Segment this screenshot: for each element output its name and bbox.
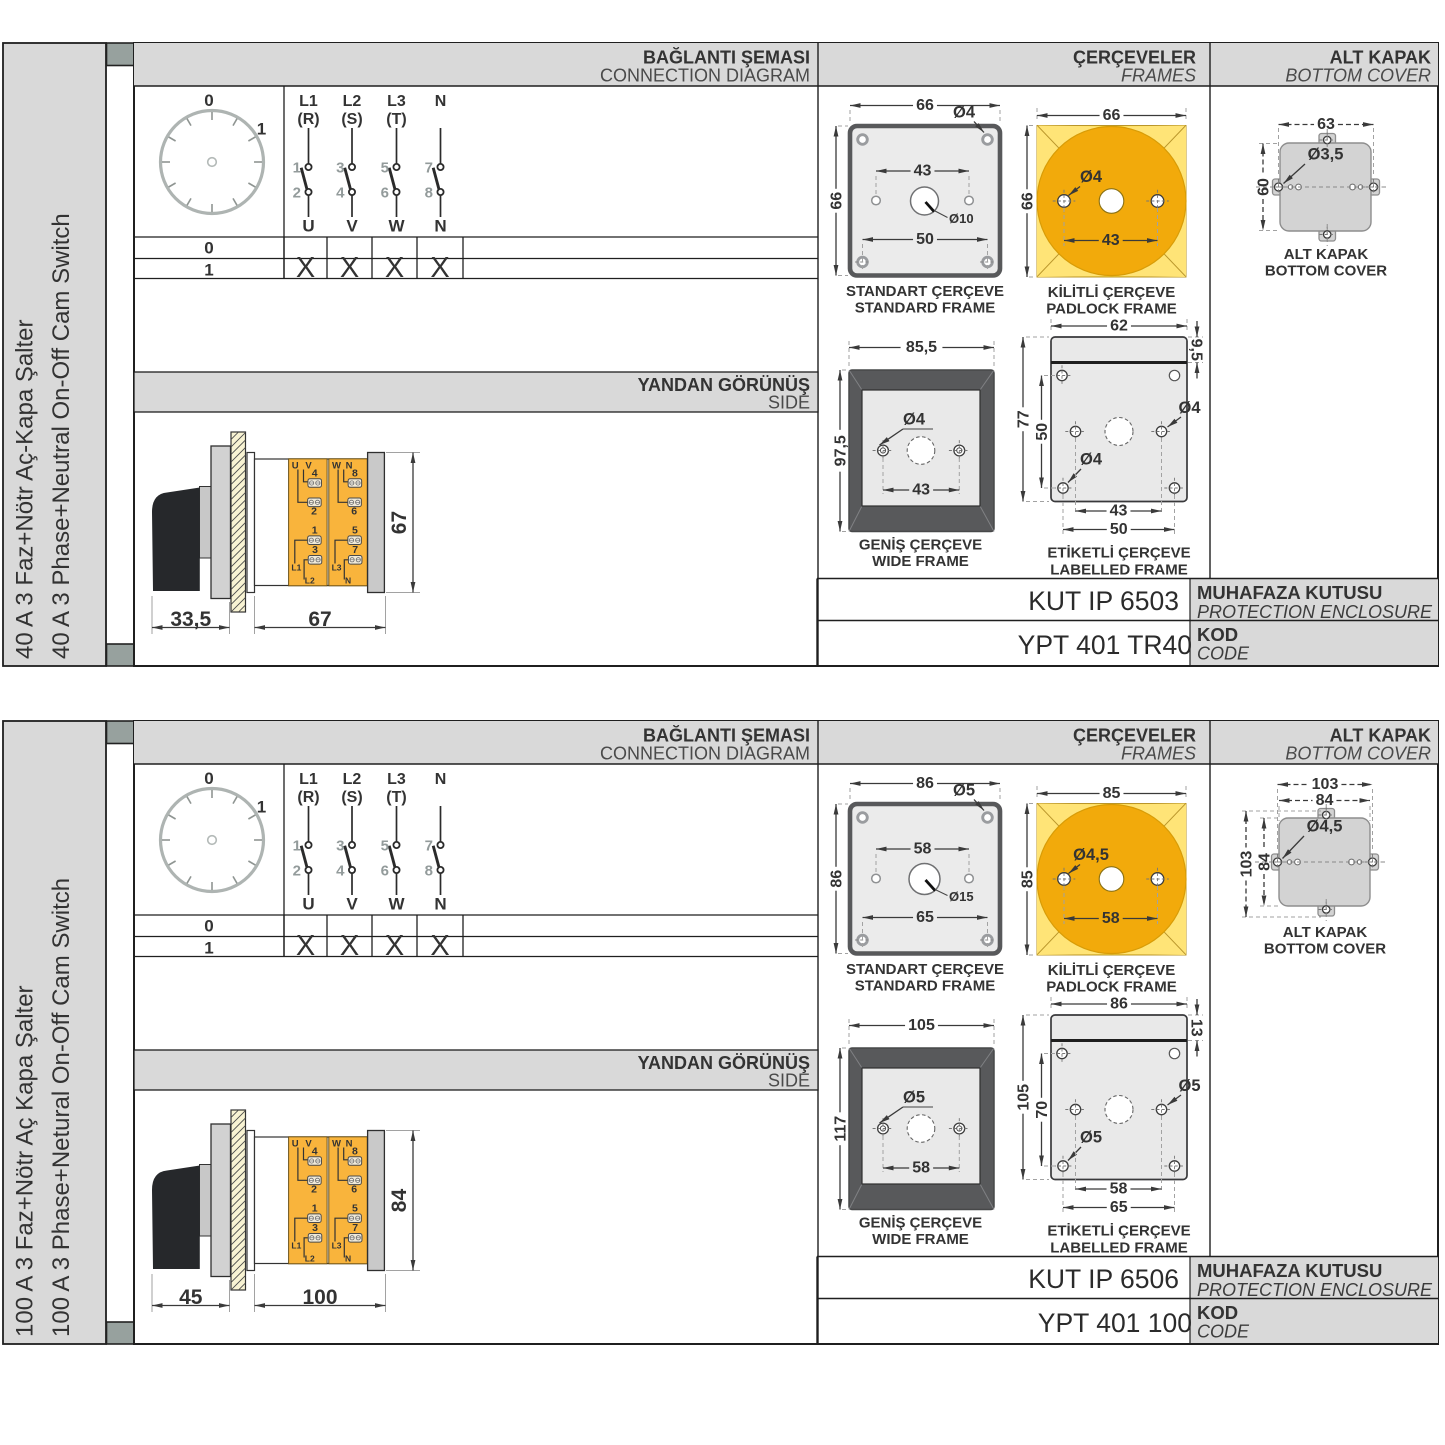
- svg-text:3: 3: [312, 544, 318, 556]
- svg-text:77: 77: [1015, 410, 1032, 428]
- svg-text:84: 84: [1316, 792, 1334, 809]
- svg-text:(S): (S): [341, 111, 362, 128]
- svg-text:4: 4: [312, 468, 318, 480]
- svg-text:Ø4: Ø4: [903, 411, 926, 429]
- svg-text:45: 45: [179, 1286, 203, 1309]
- svg-text:2: 2: [293, 185, 301, 202]
- svg-text:Ø5: Ø5: [1178, 1077, 1200, 1095]
- svg-text:KOD: KOD: [1197, 1302, 1238, 1323]
- svg-text:Ø3,5: Ø3,5: [1308, 146, 1344, 164]
- svg-text:L2: L2: [343, 93, 362, 110]
- svg-text:Ø10: Ø10: [949, 211, 974, 226]
- svg-text:(R): (R): [297, 111, 319, 128]
- svg-text:Ø5: Ø5: [953, 782, 975, 800]
- svg-text:STANDARD FRAME: STANDARD FRAME: [855, 978, 996, 995]
- svg-text:0: 0: [204, 239, 213, 258]
- svg-text:ÇERÇEVELER: ÇERÇEVELER: [1073, 48, 1196, 68]
- svg-text:ALT KAPAK: ALT KAPAK: [1284, 246, 1369, 263]
- svg-text:3: 3: [336, 160, 344, 177]
- svg-text:65: 65: [916, 909, 934, 926]
- svg-text:1: 1: [312, 525, 318, 537]
- svg-text:STANDART ÇERÇEVE: STANDART ÇERÇEVE: [846, 961, 1004, 978]
- svg-text:6: 6: [381, 185, 389, 202]
- svg-text:8: 8: [425, 185, 433, 202]
- svg-text:V: V: [346, 217, 358, 236]
- svg-text:43: 43: [1102, 232, 1120, 249]
- svg-text:WIDE FRAME: WIDE FRAME: [872, 1231, 969, 1248]
- svg-text:ÇERÇEVELER: ÇERÇEVELER: [1073, 726, 1196, 746]
- svg-text:66: 66: [1103, 107, 1121, 124]
- svg-text:7: 7: [425, 160, 433, 177]
- svg-text:85: 85: [1019, 870, 1036, 888]
- svg-text:63: 63: [1317, 116, 1335, 133]
- svg-text:1: 1: [312, 1203, 318, 1215]
- svg-text:Ø5: Ø5: [1080, 1129, 1102, 1147]
- svg-text:PADLOCK FRAME: PADLOCK FRAME: [1046, 979, 1177, 996]
- svg-text:(S): (S): [341, 789, 362, 806]
- svg-text:86: 86: [1110, 995, 1128, 1012]
- svg-text:U: U: [292, 461, 299, 472]
- svg-text:BAĞLANTI ŞEMASI: BAĞLANTI ŞEMASI: [643, 47, 810, 68]
- svg-text:86: 86: [916, 775, 934, 792]
- svg-text:X: X: [430, 252, 449, 284]
- svg-text:Ø4,5: Ø4,5: [1307, 818, 1343, 836]
- svg-text:CODE: CODE: [1197, 644, 1250, 664]
- svg-text:Ø4: Ø4: [1080, 451, 1103, 469]
- svg-text:6: 6: [351, 506, 357, 518]
- svg-text:W: W: [388, 895, 405, 914]
- svg-text:X: X: [340, 252, 359, 284]
- svg-text:STANDARD FRAME: STANDARD FRAME: [855, 300, 996, 317]
- svg-text:(T): (T): [386, 789, 406, 806]
- svg-text:2: 2: [311, 1184, 317, 1196]
- svg-text:100 A 3 Faz+Nötr Aç Kapa Şalte: 100 A 3 Faz+Nötr Aç Kapa Şalter: [12, 985, 39, 1337]
- svg-text:N: N: [435, 771, 447, 788]
- svg-text:KOD: KOD: [1197, 624, 1238, 645]
- svg-text:FRAMES: FRAMES: [1121, 66, 1196, 86]
- svg-text:PROTECTION ENCLOSURE: PROTECTION ENCLOSURE: [1197, 602, 1433, 622]
- svg-text:WIDE FRAME: WIDE FRAME: [872, 553, 969, 570]
- svg-text:86: 86: [828, 870, 845, 888]
- svg-text:Ø4: Ø4: [953, 104, 976, 122]
- svg-text:2: 2: [311, 506, 317, 518]
- svg-text:BOTTOM COVER: BOTTOM COVER: [1285, 66, 1431, 86]
- svg-text:100: 100: [302, 1286, 337, 1309]
- svg-text:1: 1: [293, 160, 301, 177]
- svg-text:67: 67: [388, 511, 411, 534]
- svg-text:43: 43: [1110, 502, 1128, 519]
- svg-text:L1: L1: [299, 93, 318, 110]
- svg-text:X: X: [385, 930, 404, 962]
- svg-text:YPT 401 100: YPT 401 100: [1038, 1308, 1192, 1338]
- svg-text:4: 4: [336, 863, 345, 880]
- svg-text:60: 60: [1255, 178, 1272, 196]
- svg-text:STANDART ÇERÇEVE: STANDART ÇERÇEVE: [846, 283, 1004, 300]
- svg-text:13: 13: [1188, 1019, 1205, 1037]
- svg-text:LABELLED FRAME: LABELLED FRAME: [1050, 1240, 1188, 1257]
- svg-text:85: 85: [1103, 785, 1121, 802]
- svg-text:U: U: [292, 1139, 299, 1150]
- svg-text:97,5: 97,5: [832, 435, 849, 466]
- svg-text:58: 58: [1102, 910, 1120, 927]
- svg-text:1: 1: [204, 939, 213, 958]
- svg-text:62: 62: [1110, 317, 1128, 334]
- svg-text:N: N: [434, 217, 446, 236]
- svg-text:KİLİTLİ ÇERÇEVE: KİLİTLİ ÇERÇEVE: [1048, 284, 1176, 301]
- svg-text:PADLOCK FRAME: PADLOCK FRAME: [1046, 301, 1177, 318]
- svg-text:1: 1: [293, 838, 301, 855]
- svg-text:66: 66: [916, 97, 934, 114]
- svg-text:Ø4: Ø4: [1178, 399, 1201, 417]
- svg-text:L3: L3: [387, 771, 406, 788]
- svg-text:8: 8: [352, 468, 358, 480]
- svg-text:ALT KAPAK: ALT KAPAK: [1330, 726, 1431, 746]
- svg-text:W: W: [332, 461, 341, 472]
- svg-text:Ø5: Ø5: [903, 1089, 925, 1107]
- svg-text:66: 66: [828, 192, 845, 210]
- svg-text:5: 5: [381, 160, 389, 177]
- svg-text:4: 4: [336, 185, 345, 202]
- svg-text:58: 58: [912, 1159, 930, 1176]
- svg-text:5: 5: [352, 525, 358, 537]
- svg-text:0: 0: [204, 91, 213, 110]
- svg-text:L3: L3: [332, 1241, 342, 1251]
- svg-text:MUHAFAZA KUTUSU: MUHAFAZA KUTUSU: [1197, 1260, 1382, 1281]
- svg-text:KUT IP 6503: KUT IP 6503: [1028, 586, 1179, 616]
- svg-text:58: 58: [1110, 1180, 1128, 1197]
- svg-text:KUT IP 6506: KUT IP 6506: [1028, 1264, 1179, 1294]
- svg-text:Ø4: Ø4: [1080, 168, 1103, 186]
- svg-text:5: 5: [352, 1203, 358, 1215]
- svg-text:7: 7: [352, 544, 358, 556]
- svg-text:U: U: [302, 895, 314, 914]
- svg-text:(T): (T): [386, 111, 406, 128]
- svg-text:L3: L3: [387, 93, 406, 110]
- svg-text:BOTTOM COVER: BOTTOM COVER: [1264, 941, 1386, 958]
- svg-text:KİLİTLİ ÇERÇEVE: KİLİTLİ ÇERÇEVE: [1048, 962, 1176, 979]
- svg-text:6: 6: [381, 863, 389, 880]
- svg-text:SIDE: SIDE: [768, 393, 810, 413]
- svg-text:LABELLED FRAME: LABELLED FRAME: [1050, 562, 1188, 579]
- svg-text:100 A 3 Phase+Netural On-Off C: 100 A 3 Phase+Netural On-Off Cam Switch: [48, 878, 75, 1337]
- svg-text:43: 43: [912, 481, 930, 498]
- svg-text:GENİŞ ÇERÇEVE: GENİŞ ÇERÇEVE: [859, 1215, 982, 1232]
- svg-text:X: X: [430, 930, 449, 962]
- svg-text:50: 50: [1110, 521, 1128, 538]
- svg-text:40 A 3 Faz+Nötr Aç-Kapa Şalter: 40 A 3 Faz+Nötr Aç-Kapa Şalter: [12, 319, 39, 659]
- svg-text:7: 7: [352, 1222, 358, 1234]
- svg-text:3: 3: [312, 1222, 318, 1234]
- svg-text:2: 2: [293, 863, 301, 880]
- svg-text:5: 5: [381, 838, 389, 855]
- svg-text:L2: L2: [305, 1254, 315, 1264]
- svg-text:BOTTOM COVER: BOTTOM COVER: [1265, 263, 1387, 280]
- svg-text:L1: L1: [299, 771, 318, 788]
- svg-text:ALT KAPAK: ALT KAPAK: [1330, 48, 1431, 68]
- svg-text:N: N: [345, 576, 351, 586]
- svg-text:Ø15: Ø15: [949, 889, 974, 904]
- svg-text:9,5: 9,5: [1188, 339, 1205, 361]
- svg-text:105: 105: [908, 1017, 935, 1034]
- svg-text:V: V: [346, 895, 358, 914]
- svg-text:U: U: [302, 217, 314, 236]
- svg-text:7: 7: [425, 838, 433, 855]
- svg-text:N: N: [345, 1254, 351, 1264]
- svg-text:67: 67: [308, 608, 331, 631]
- svg-text:CONNECTION DIAGRAM: CONNECTION DIAGRAM: [600, 66, 810, 86]
- svg-text:58: 58: [914, 840, 932, 857]
- svg-text:8: 8: [425, 863, 433, 880]
- svg-text:W: W: [388, 217, 405, 236]
- svg-text:84: 84: [388, 1189, 411, 1213]
- svg-text:103: 103: [1312, 776, 1339, 793]
- svg-text:GENİŞ ÇERÇEVE: GENİŞ ÇERÇEVE: [859, 537, 982, 554]
- svg-text:FRAMES: FRAMES: [1121, 744, 1196, 764]
- svg-text:ALT KAPAK: ALT KAPAK: [1283, 924, 1368, 941]
- svg-text:CODE: CODE: [1197, 1322, 1250, 1342]
- svg-text:50: 50: [916, 231, 934, 248]
- svg-text:ETİKETLİ ÇERÇEVE: ETİKETLİ ÇERÇEVE: [1047, 1223, 1190, 1240]
- svg-text:CONNECTION DIAGRAM: CONNECTION DIAGRAM: [600, 744, 810, 764]
- svg-text:X: X: [296, 930, 315, 962]
- svg-text:70: 70: [1034, 1101, 1051, 1119]
- svg-text:1: 1: [204, 261, 213, 280]
- svg-text:50: 50: [1034, 423, 1051, 441]
- svg-text:N: N: [435, 93, 447, 110]
- svg-text:40 A 3 Phase+Neutral On-Off Ca: 40 A 3 Phase+Neutral On-Off Cam Switch: [48, 213, 75, 659]
- svg-text:X: X: [385, 252, 404, 284]
- svg-text:1: 1: [257, 120, 266, 139]
- svg-text:X: X: [340, 930, 359, 962]
- svg-text:L1: L1: [291, 563, 301, 573]
- svg-text:L3: L3: [332, 563, 342, 573]
- svg-text:3: 3: [336, 838, 344, 855]
- svg-text:85,5: 85,5: [906, 339, 937, 356]
- svg-text:6: 6: [351, 1184, 357, 1196]
- svg-text:0: 0: [204, 769, 213, 788]
- svg-text:N: N: [434, 895, 446, 914]
- svg-text:L1: L1: [291, 1241, 301, 1251]
- svg-text:SIDE: SIDE: [768, 1071, 810, 1091]
- svg-text:PROTECTION ENCLOSURE: PROTECTION ENCLOSURE: [1197, 1280, 1433, 1300]
- svg-text:BAĞLANTI ŞEMASI: BAĞLANTI ŞEMASI: [643, 725, 810, 746]
- svg-text:BOTTOM COVER: BOTTOM COVER: [1285, 744, 1431, 764]
- svg-text:ETİKETLİ ÇERÇEVE: ETİKETLİ ÇERÇEVE: [1047, 545, 1190, 562]
- svg-text:4: 4: [312, 1146, 318, 1158]
- svg-text:43: 43: [914, 162, 932, 179]
- svg-text:103: 103: [1238, 851, 1255, 878]
- svg-text:1: 1: [257, 798, 266, 817]
- svg-text:8: 8: [352, 1146, 358, 1158]
- svg-text:66: 66: [1019, 192, 1036, 210]
- svg-text:(R): (R): [297, 789, 319, 806]
- svg-text:65: 65: [1110, 1199, 1128, 1216]
- svg-text:MUHAFAZA KUTUSU: MUHAFAZA KUTUSU: [1197, 582, 1382, 603]
- svg-text:X: X: [296, 252, 315, 284]
- svg-text:105: 105: [1015, 1084, 1032, 1111]
- svg-text:L2: L2: [305, 576, 315, 586]
- svg-text:33,5: 33,5: [170, 608, 211, 631]
- svg-text:YPT 401 TR40: YPT 401 TR40: [1018, 630, 1192, 660]
- svg-text:117: 117: [832, 1116, 849, 1142]
- svg-text:84: 84: [1256, 853, 1273, 871]
- svg-text:L2: L2: [343, 771, 362, 788]
- svg-text:Ø4,5: Ø4,5: [1073, 846, 1109, 864]
- svg-text:0: 0: [204, 917, 213, 936]
- svg-text:W: W: [332, 1139, 341, 1150]
